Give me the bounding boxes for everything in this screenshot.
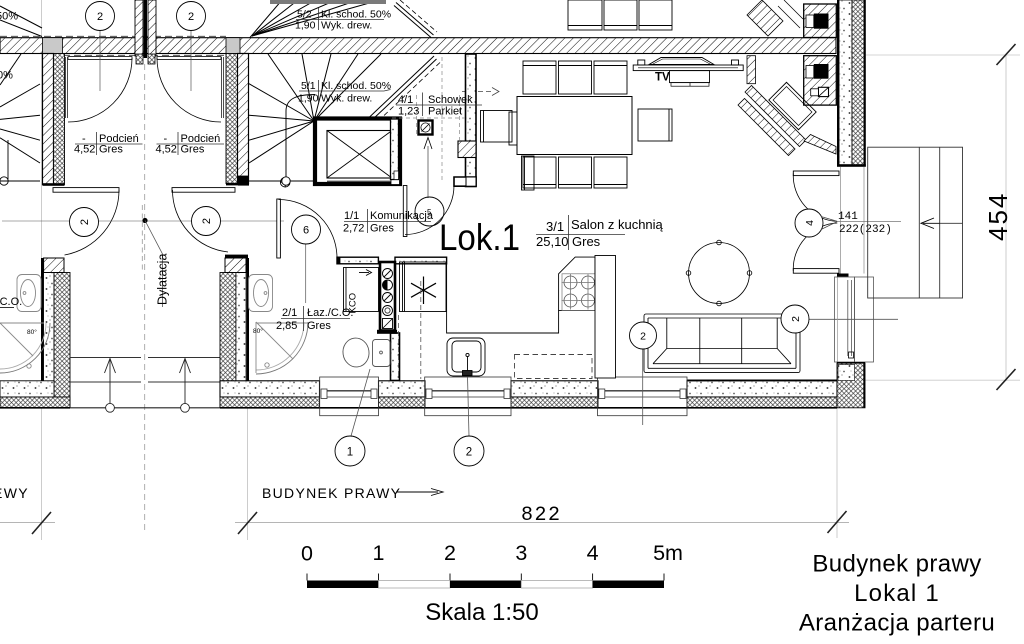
svg-text:80°: 80° bbox=[27, 328, 37, 336]
svg-text:Schowek: Schowek bbox=[428, 94, 473, 106]
svg-text:2,72: 2,72 bbox=[343, 223, 364, 235]
svg-text:TV: TV bbox=[655, 72, 670, 84]
svg-text:3: 3 bbox=[515, 541, 527, 565]
svg-text:4: 4 bbox=[804, 220, 816, 226]
svg-text:2: 2 bbox=[201, 218, 213, 224]
svg-text:Salon z kuchnią: Salon z kuchnią bbox=[571, 217, 664, 232]
svg-text:Lokal 1: Lokal 1 bbox=[854, 580, 940, 607]
svg-text:2,85: 2,85 bbox=[276, 320, 297, 332]
svg-text:1,90: 1,90 bbox=[298, 93, 319, 105]
svg-text:5: 5 bbox=[427, 208, 432, 217]
svg-text:Gres: Gres bbox=[307, 320, 331, 332]
svg-text:1: 1 bbox=[347, 446, 353, 458]
svg-text:50%: 50% bbox=[0, 11, 18, 23]
svg-text:25,10: 25,10 bbox=[536, 234, 569, 249]
svg-text:2/1: 2/1 bbox=[282, 307, 297, 319]
svg-text:141: 141 bbox=[838, 211, 858, 223]
svg-text:2: 2 bbox=[790, 316, 802, 322]
svg-text:2: 2 bbox=[79, 219, 91, 225]
svg-text:4/1: 4/1 bbox=[398, 94, 413, 106]
svg-text:Budynek prawy: Budynek prawy bbox=[812, 551, 981, 578]
svg-text:Gres: Gres bbox=[181, 144, 205, 156]
svg-text:3/1: 3/1 bbox=[546, 219, 564, 234]
svg-text:Gres: Gres bbox=[370, 223, 394, 235]
svg-text:Skala 1:50: Skala 1:50 bbox=[425, 599, 538, 626]
svg-text:80°: 80° bbox=[253, 327, 263, 335]
svg-text:0: 0 bbox=[301, 542, 313, 566]
svg-text:4,52: 4,52 bbox=[74, 144, 95, 156]
svg-text:Wyk. drew.: Wyk. drew. bbox=[321, 93, 372, 105]
svg-text:0%: 0% bbox=[0, 70, 13, 82]
svg-text:Kl. schod. 50%: Kl. schod. 50% bbox=[321, 80, 391, 92]
svg-text:Wyk. drew.: Wyk. drew. bbox=[321, 20, 372, 32]
svg-text:1,23: 1,23 bbox=[398, 106, 419, 118]
svg-text:1,90: 1,90 bbox=[295, 20, 316, 32]
svg-text:2: 2 bbox=[466, 446, 472, 458]
svg-text:Aranżacja parteru: Aranżacja parteru bbox=[799, 610, 995, 637]
svg-text:z./C.O.: z./C.O. bbox=[0, 296, 22, 308]
svg-text:222(232): 222(232) bbox=[839, 224, 892, 236]
svg-text:Gres: Gres bbox=[572, 234, 601, 249]
svg-text:Łaz./C.O.: Łaz./C.O. bbox=[307, 307, 353, 319]
svg-text:4,52: 4,52 bbox=[156, 144, 177, 156]
svg-text:454: 454 bbox=[983, 192, 1013, 241]
svg-text:6: 6 bbox=[303, 225, 309, 237]
svg-text:Gres: Gres bbox=[99, 144, 123, 156]
svg-text:5m: 5m bbox=[653, 541, 683, 565]
svg-text:2: 2 bbox=[97, 11, 103, 23]
svg-text:1: 1 bbox=[373, 541, 385, 565]
svg-text:Parkiet: Parkiet bbox=[428, 106, 462, 118]
svg-text:BUDYNEK PRAWY: BUDYNEK PRAWY bbox=[262, 485, 401, 501]
svg-text:1/1: 1/1 bbox=[344, 210, 359, 222]
svg-text:2: 2 bbox=[444, 541, 456, 565]
svg-text:Dylatacja: Dylatacja bbox=[156, 254, 170, 305]
svg-text:2: 2 bbox=[640, 330, 646, 342]
svg-text:822: 822 bbox=[521, 504, 562, 527]
svg-text:Lok.1: Lok.1 bbox=[439, 217, 520, 258]
svg-text:2: 2 bbox=[188, 11, 194, 23]
svg-text:Komunikacja: Komunikacja bbox=[370, 210, 434, 222]
svg-text:BUDYNEK LEWY: BUDYNEK LEWY bbox=[0, 485, 29, 501]
svg-text:5/1: 5/1 bbox=[301, 80, 316, 92]
svg-text:4: 4 bbox=[587, 541, 599, 565]
